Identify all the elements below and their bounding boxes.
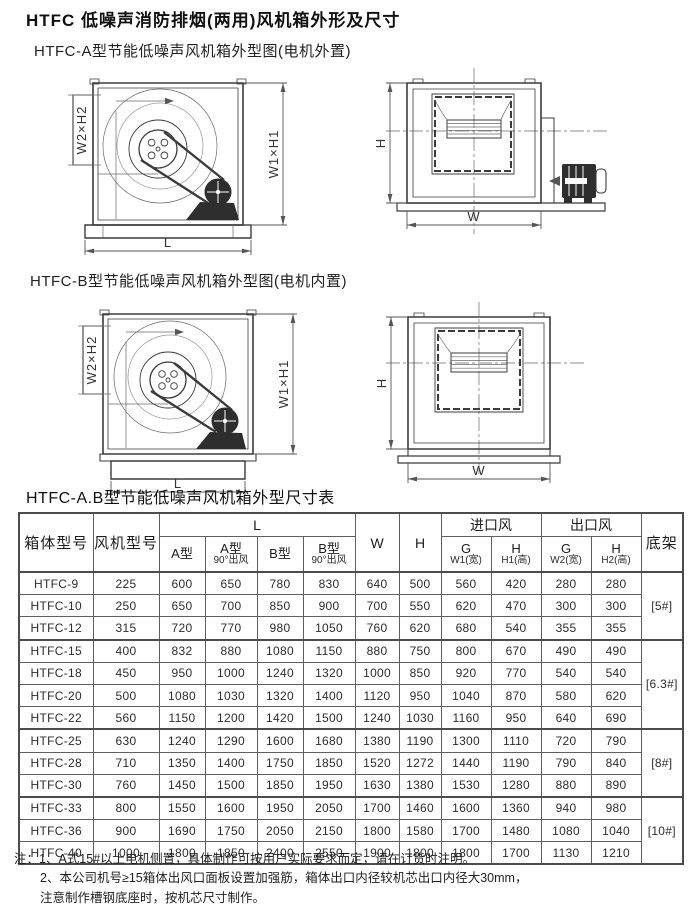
dimension-cell: 640 xyxy=(541,707,591,730)
dimension-table-body: HTFC-9225600650780830640500560420280280[… xyxy=(19,572,683,864)
dimension-cell: 1500 xyxy=(303,707,355,730)
dimension-cell: 700 xyxy=(355,595,399,617)
base-frame-cell: [8#] xyxy=(641,729,683,797)
dimension-cell: 420 xyxy=(491,572,541,595)
notes-block: 注： 1、A式15#以上电机侧置，具体制作可按用户实际要求而定，请在订货时注明。… xyxy=(14,850,690,908)
box-model-cell: HTFC-10 xyxy=(19,595,93,617)
dimension-cell: 1950 xyxy=(257,797,303,820)
b-side-inlet-label: W2×H2 xyxy=(84,336,99,385)
table-row: HTFC-9225600650780830640500560420280280[… xyxy=(19,572,683,595)
dimension-cell: 1080 xyxy=(541,820,591,842)
dimension-cell: 1040 xyxy=(441,684,491,706)
dimension-cell: 1550 xyxy=(159,797,205,820)
dimension-cell: 1520 xyxy=(355,752,399,774)
box-model-cell: HTFC-22 xyxy=(19,707,93,730)
dimension-cell: 1160 xyxy=(441,707,491,730)
box-model-cell: HTFC-30 xyxy=(19,774,93,797)
dimension-cell: 1150 xyxy=(303,640,355,663)
table-row: HTFC-12315720770980105076062068054035535… xyxy=(19,617,683,640)
table-header: 箱体型号 风机型号 L W H 进口风 出口风 底架 A型 A型90°出风 B型… xyxy=(19,513,683,572)
dimension-cell: 1120 xyxy=(355,684,399,706)
dimension-cell: 720 xyxy=(541,729,591,752)
dimension-cell: 500 xyxy=(93,684,159,706)
dimension-cell: 1240 xyxy=(355,707,399,730)
dimension-cell: 1190 xyxy=(399,729,441,752)
dimension-cell: 225 xyxy=(93,572,159,595)
dimension-cell: 790 xyxy=(541,752,591,774)
box-model-cell: HTFC-12 xyxy=(19,617,93,640)
table-row: HTFC-22560115012001420150012401030116095… xyxy=(19,707,683,730)
dimension-cell: 780 xyxy=(257,572,303,595)
dimension-cell: 750 xyxy=(399,640,441,663)
htfc-a-side-view-drawing: W2×H2 L W1×H1 xyxy=(28,56,358,268)
a-front-width-label: W xyxy=(467,209,480,224)
header-outlet-h2: HH2(高) xyxy=(591,537,641,573)
dimension-cell: 355 xyxy=(541,617,591,640)
dimension-cell: 980 xyxy=(257,617,303,640)
header-inlet-group: 进口风 xyxy=(441,513,541,537)
dimension-cell: 650 xyxy=(205,572,257,595)
dimension-cell: 580 xyxy=(541,684,591,706)
dimension-cell: 850 xyxy=(399,662,441,684)
dimension-cell: 880 xyxy=(355,640,399,663)
dimension-cell: 300 xyxy=(591,595,641,617)
dimension-cell: 2050 xyxy=(303,797,355,820)
dimension-cell: 1040 xyxy=(591,820,641,842)
dimension-cell: 1080 xyxy=(159,684,205,706)
dimension-cell: 470 xyxy=(491,595,541,617)
dimension-cell: 832 xyxy=(159,640,205,663)
htfc-a-front-view-drawing: H W xyxy=(366,56,700,268)
dimension-cell: 900 xyxy=(93,820,159,842)
b-front-height-label: H xyxy=(374,378,389,388)
dimension-table: 箱体型号 风机型号 L W H 进口风 出口风 底架 A型 A型90°出风 B型… xyxy=(18,512,684,865)
header-l-a: A型 xyxy=(159,537,205,573)
dimension-cell: 1750 xyxy=(257,752,303,774)
dimension-cell: 1280 xyxy=(491,774,541,797)
dimension-cell: 1800 xyxy=(355,820,399,842)
dimension-cell: 1600 xyxy=(441,797,491,820)
dimension-cell: 1110 xyxy=(491,729,541,752)
header-box-model: 箱体型号 xyxy=(19,513,93,572)
table-row: HTFC-28710135014001750185015201272144011… xyxy=(19,752,683,774)
dimension-cell: 1272 xyxy=(399,752,441,774)
scanned-catalog-page: { "page": { "title": "HTFC 低噪声消防排烟(两用)风机… xyxy=(0,0,700,905)
box-model-cell: HTFC-28 xyxy=(19,752,93,774)
notes-prefix: 注： xyxy=(14,850,39,869)
table-row: HTFC-36900169017502050215018001580170014… xyxy=(19,820,683,842)
dimension-cell: 1240 xyxy=(257,662,303,684)
dimension-cell: 540 xyxy=(591,662,641,684)
dimension-cell: 640 xyxy=(355,572,399,595)
dimension-cell: 1350 xyxy=(159,752,205,774)
dimension-cell: 2050 xyxy=(257,820,303,842)
header-inlet-w1: GW1(宽) xyxy=(441,537,491,573)
htfc-b-side-view-drawing: W2×H2 L W1×H1 xyxy=(28,292,358,504)
dimension-cell: 840 xyxy=(591,752,641,774)
dimension-cell: 450 xyxy=(93,662,159,684)
dimension-cell: 1850 xyxy=(303,752,355,774)
dimension-cell: 1320 xyxy=(303,662,355,684)
dimension-cell: 1530 xyxy=(441,774,491,797)
dimension-cell: 1600 xyxy=(205,797,257,820)
header-outlet-w2: GW2(宽) xyxy=(541,537,591,573)
box-model-cell: HTFC-36 xyxy=(19,820,93,842)
dimension-cell: 1700 xyxy=(441,820,491,842)
page-title: HTFC 低噪声消防排烟(两用)风机箱外形及尺寸 xyxy=(26,6,400,31)
dimension-cell: 950 xyxy=(159,662,205,684)
dimension-cell: 400 xyxy=(93,640,159,663)
dimension-cell: 620 xyxy=(399,617,441,640)
dimension-cell: 800 xyxy=(441,640,491,663)
dimension-cell: 690 xyxy=(591,707,641,730)
dimension-cell: 1500 xyxy=(205,774,257,797)
dimension-cell: 800 xyxy=(93,797,159,820)
header-h: H xyxy=(399,513,441,572)
table-row: HTFC-33800155016001950205017001460160013… xyxy=(19,797,683,820)
dimension-cell: 2150 xyxy=(303,820,355,842)
header-w: W xyxy=(355,513,399,572)
dimension-cell: 770 xyxy=(205,617,257,640)
dimension-cell: 490 xyxy=(591,640,641,663)
dimension-cell: 1300 xyxy=(441,729,491,752)
dimension-cell: 620 xyxy=(441,595,491,617)
b-side-outlet-label: W1×H1 xyxy=(276,360,291,409)
dimension-cell: 1600 xyxy=(257,729,303,752)
a-side-outlet-label: W1×H1 xyxy=(266,130,281,179)
dimension-cell: 1630 xyxy=(355,774,399,797)
dimension-cell: 280 xyxy=(541,572,591,595)
dimension-cell: 355 xyxy=(591,617,641,640)
dimension-cell: 630 xyxy=(93,729,159,752)
dimension-cell: 680 xyxy=(441,617,491,640)
box-model-cell: HTFC-25 xyxy=(19,729,93,752)
header-l-b90: B型90°出风 xyxy=(303,537,355,573)
dimension-cell: 1190 xyxy=(491,752,541,774)
dimension-cell: 1690 xyxy=(159,820,205,842)
dimension-cell: 560 xyxy=(93,707,159,730)
header-fan-model: 风机型号 xyxy=(93,513,159,572)
dimension-cell: 1050 xyxy=(303,617,355,640)
htfc-b-front-view-drawing: H W xyxy=(366,292,700,504)
dimension-cell: 540 xyxy=(541,662,591,684)
note-line-2: 2、本公司机号≥15箱体出风口面板设置加强筋，箱体出口内径较机芯出口内径大30m… xyxy=(14,869,690,888)
header-base-frame: 底架 xyxy=(641,513,683,572)
table-row: HTFC-20500108010301320140011209501040870… xyxy=(19,684,683,706)
dimension-cell: 760 xyxy=(355,617,399,640)
dimension-cell: 1030 xyxy=(399,707,441,730)
header-l-group: L xyxy=(159,513,355,537)
dimension-cell: 1480 xyxy=(491,820,541,842)
dimension-cell: 490 xyxy=(541,640,591,663)
dimension-cell: 1290 xyxy=(205,729,257,752)
dimension-cell: 1400 xyxy=(303,684,355,706)
box-model-cell: HTFC-15 xyxy=(19,640,93,663)
table-row: HTFC-30760145015001850195016301380153012… xyxy=(19,774,683,797)
table-row: HTFC-18450950100012401320100085092077054… xyxy=(19,662,683,684)
dimension-cell: 500 xyxy=(399,572,441,595)
note-line-1: 1、A式15#以上电机侧置，具体制作可按用户实际要求而定，请在订货时注明。 xyxy=(39,850,475,869)
dimension-cell: 1700 xyxy=(355,797,399,820)
header-inlet-h1: HH1(高) xyxy=(491,537,541,573)
dimension-cell: 880 xyxy=(205,640,257,663)
dimension-cell: 1320 xyxy=(257,684,303,706)
dimension-cell: 1400 xyxy=(205,752,257,774)
dimension-cell: 560 xyxy=(441,572,491,595)
dimension-cell: 600 xyxy=(159,572,205,595)
box-model-cell: HTFC-20 xyxy=(19,684,93,706)
base-frame-cell: [6.3#] xyxy=(641,640,683,730)
box-model-cell: HTFC-33 xyxy=(19,797,93,820)
dimension-cell: 1200 xyxy=(205,707,257,730)
section-b-heading: HTFC-B型节能低噪声风机箱外型图(电机内置) xyxy=(30,270,347,291)
dimension-cell: 1080 xyxy=(257,640,303,663)
table-row: HTFC-25630124012901600168013801190130011… xyxy=(19,729,683,752)
dimension-cell: 1450 xyxy=(159,774,205,797)
a-front-height-label: H xyxy=(373,138,388,148)
dimension-cell: 1000 xyxy=(355,662,399,684)
dimension-cell: 620 xyxy=(591,684,641,706)
dimension-cell: 1750 xyxy=(205,820,257,842)
dimension-cell: 250 xyxy=(93,595,159,617)
dimension-cell: 1850 xyxy=(257,774,303,797)
dimension-cell: 950 xyxy=(399,684,441,706)
dimension-cell: 1580 xyxy=(399,820,441,842)
note-line-3: 注意制作槽钢底座时，按机芯尺寸制作。 xyxy=(14,889,690,908)
a-side-length-label: L xyxy=(164,235,172,250)
a-side-inlet-label: W2×H2 xyxy=(74,106,89,155)
dimension-cell: 1950 xyxy=(303,774,355,797)
dimension-cell: 770 xyxy=(491,662,541,684)
b-front-width-label: W xyxy=(472,463,485,478)
dimension-table-container: 箱体型号 风机型号 L W H 进口风 出口风 底架 A型 A型90°出风 B型… xyxy=(18,512,684,865)
dimension-cell: 550 xyxy=(399,595,441,617)
dimension-cell: 950 xyxy=(491,707,541,730)
base-frame-cell: [5#] xyxy=(641,572,683,640)
dimension-cell: 1440 xyxy=(441,752,491,774)
dimension-cell: 1680 xyxy=(303,729,355,752)
dimension-cell: 1000 xyxy=(205,662,257,684)
dimension-cell: 670 xyxy=(491,640,541,663)
dimension-cell: 1240 xyxy=(159,729,205,752)
dimension-cell: 790 xyxy=(591,729,641,752)
dimension-cell: 700 xyxy=(205,595,257,617)
dimension-cell: 1380 xyxy=(399,774,441,797)
dimension-cell: 900 xyxy=(303,595,355,617)
header-l-b: B型 xyxy=(257,537,303,573)
dimension-cell: 1150 xyxy=(159,707,205,730)
dimension-cell: 920 xyxy=(441,662,491,684)
dimension-cell: 1460 xyxy=(399,797,441,820)
dimension-cell: 760 xyxy=(93,774,159,797)
dimension-cell: 300 xyxy=(541,595,591,617)
header-l-a90: A型90°出风 xyxy=(205,537,257,573)
dimension-cell: 1380 xyxy=(355,729,399,752)
table-title: HTFC-A.B型节能低噪声风机箱外型尺寸表 xyxy=(26,484,335,508)
dimension-cell: 880 xyxy=(541,774,591,797)
dimension-cell: 280 xyxy=(591,572,641,595)
dimension-cell: 940 xyxy=(541,797,591,820)
dimension-cell: 1030 xyxy=(205,684,257,706)
dimension-cell: 540 xyxy=(491,617,541,640)
dimension-cell: 720 xyxy=(159,617,205,640)
dimension-cell: 890 xyxy=(591,774,641,797)
dimension-cell: 1360 xyxy=(491,797,541,820)
dimension-cell: 980 xyxy=(591,797,641,820)
box-model-cell: HTFC-9 xyxy=(19,572,93,595)
table-row: HTFC-15400832880108011508807508006704904… xyxy=(19,640,683,663)
dimension-cell: 850 xyxy=(257,595,303,617)
header-outlet-group: 出口风 xyxy=(541,513,641,537)
dimension-cell: 650 xyxy=(159,595,205,617)
table-row: HTFC-10250650700850900700550620470300300 xyxy=(19,595,683,617)
dimension-cell: 830 xyxy=(303,572,355,595)
dimension-cell: 710 xyxy=(93,752,159,774)
dimension-cell: 1420 xyxy=(257,707,303,730)
dimension-cell: 315 xyxy=(93,617,159,640)
dimension-cell: 870 xyxy=(491,684,541,706)
box-model-cell: HTFC-18 xyxy=(19,662,93,684)
